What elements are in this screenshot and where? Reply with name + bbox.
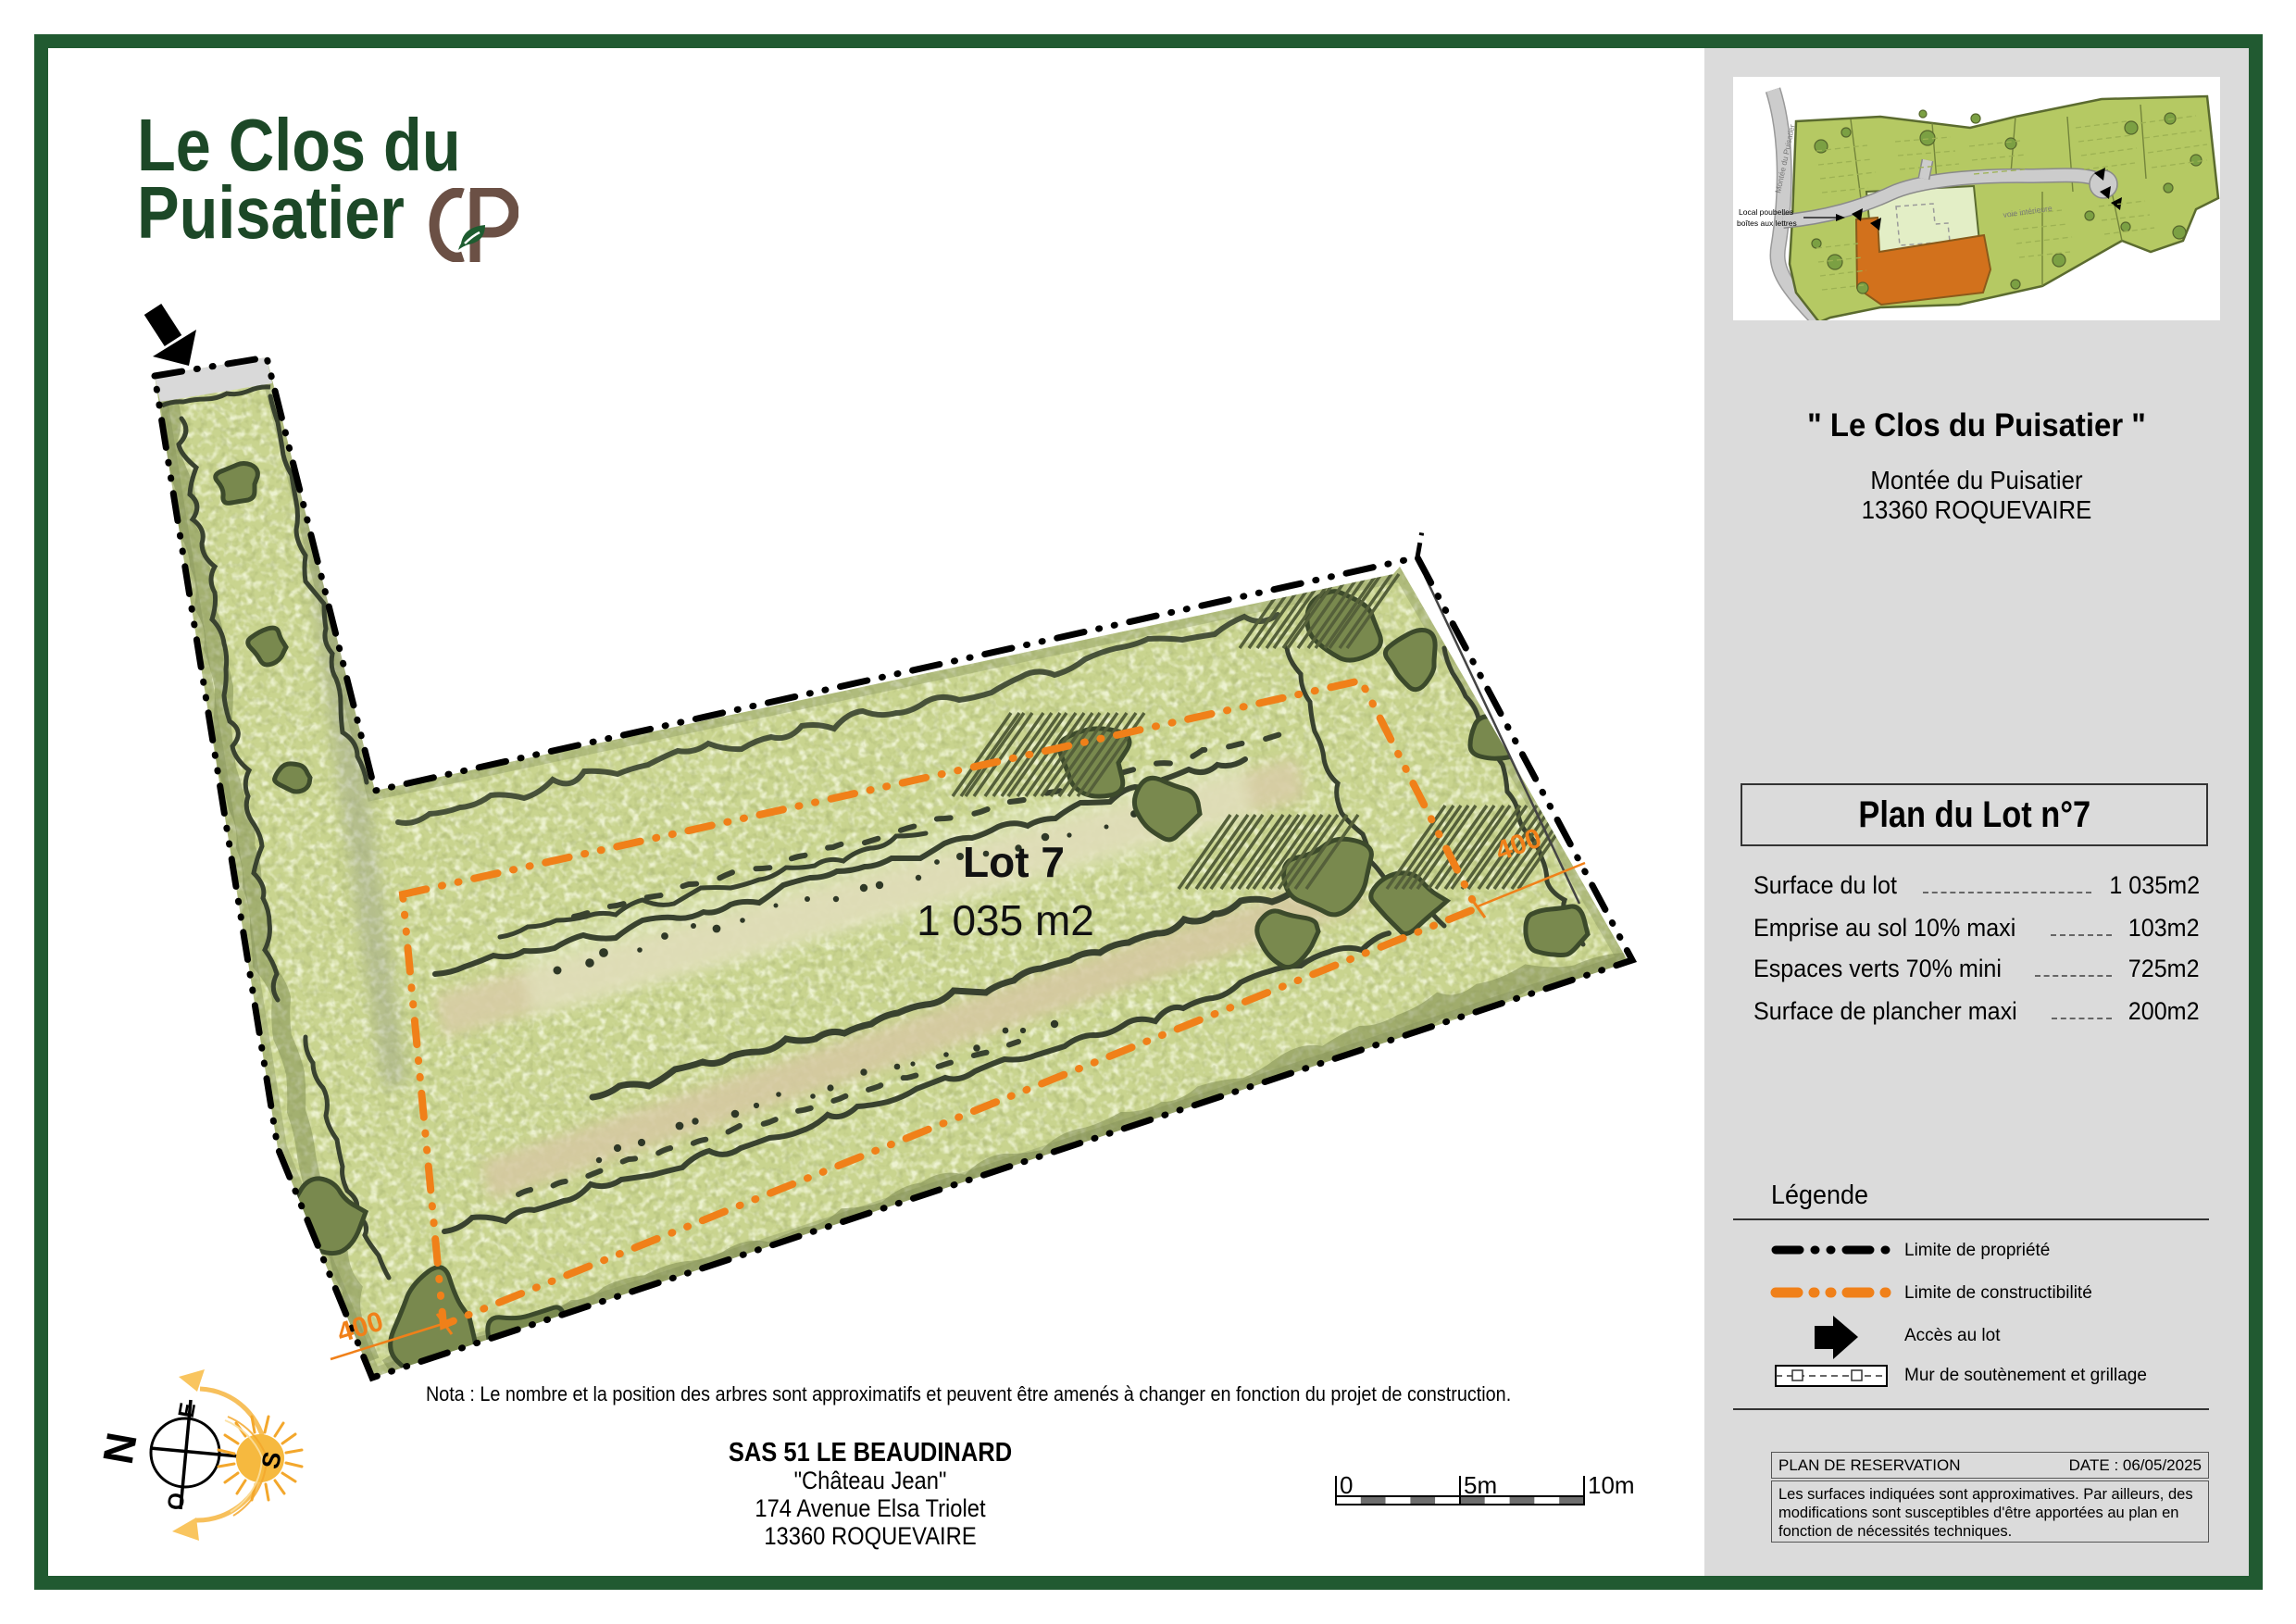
svg-text:boîtes aux lettres: boîtes aux lettres [1737,219,1797,228]
svg-text:10m: 10m [1588,1471,1635,1499]
svg-text:1 035 m2: 1 035 m2 [917,896,1094,944]
svg-text:0: 0 [1340,1471,1353,1499]
svg-text:O: O [163,1491,191,1512]
svg-text:5m: 5m [1464,1471,1497,1499]
svg-text:E: E [174,1401,201,1419]
svg-text:Local poubelles: Local poubelles [1739,207,1793,217]
svg-text:Lot 7: Lot 7 [963,838,1065,886]
svg-text:N: N [94,1429,146,1468]
